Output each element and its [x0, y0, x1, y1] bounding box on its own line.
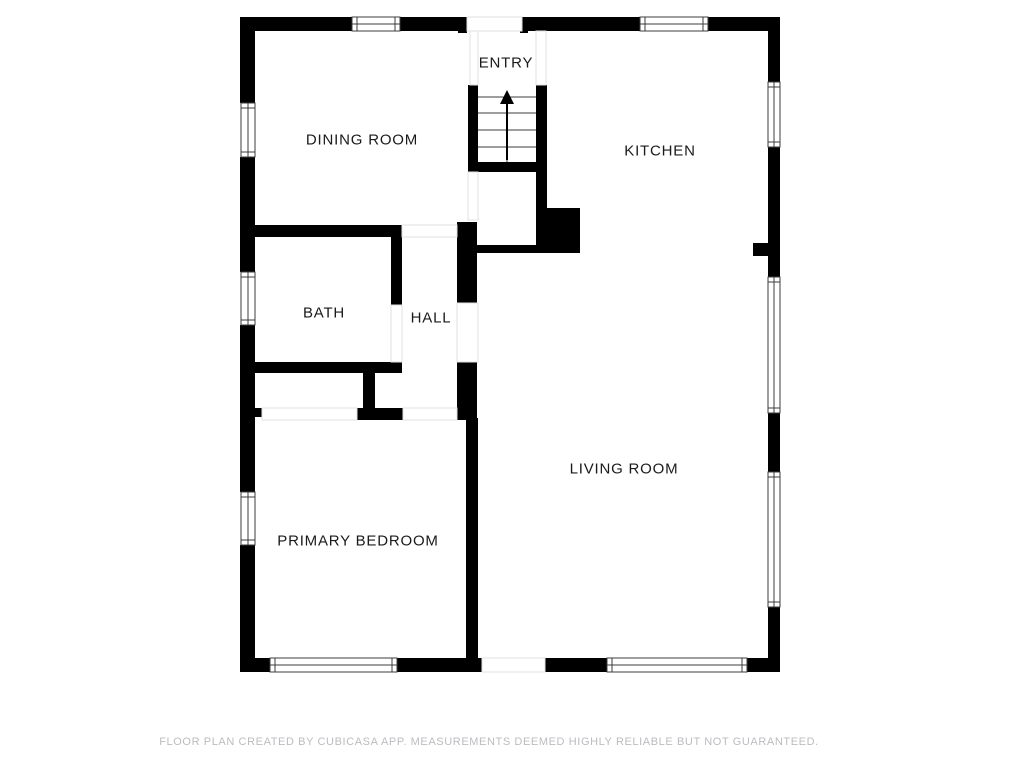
wall-bottom-4 [747, 658, 780, 672]
wall-stair-left [468, 85, 478, 172]
room-label-dining: DINING ROOM [306, 132, 418, 149]
wall-right-3 [768, 413, 780, 472]
openings [262, 17, 546, 672]
wall-closet-vertical [363, 373, 375, 410]
floor-plan-page: ENTRY DINING ROOM KITCHEN BATH HALL LIVI… [0, 0, 1024, 768]
wall-bath-right [391, 237, 402, 305]
wall-bedroom-living [466, 418, 478, 658]
wall-left-4 [240, 545, 255, 672]
wall-kitchen-living-stub [753, 243, 768, 256]
footer-disclaimer: FLOOR PLAN CREATED BY CUBICASA APP. MEAS… [159, 736, 819, 748]
window-bedroom-left [241, 492, 255, 545]
wall-bath-top [252, 225, 402, 237]
room-label-entry: ENTRY [479, 55, 534, 72]
wall-closet-bottom-horizontal [468, 245, 580, 253]
stairs [478, 90, 536, 162]
window-living-right-upper [768, 277, 780, 413]
room-label-bedroom: PRIMARY BEDROOM [277, 533, 438, 550]
entry-dining-opening [470, 31, 478, 85]
stairs-up-arrow-icon [500, 90, 514, 160]
bedroom-closet-opening [262, 408, 357, 420]
wall-right-2 [768, 147, 780, 277]
window-living-bottom [607, 658, 747, 672]
wall-bottom-3 [545, 658, 607, 672]
entry-kitchen-opening [536, 31, 546, 85]
wall-top-1 [240, 17, 352, 31]
wall-bath-bottom [252, 362, 400, 373]
wall-closet-bottom [357, 408, 403, 420]
window-kitchen-top [640, 17, 708, 31]
wall-top-2 [400, 17, 467, 31]
hall-bedroom-opening [403, 408, 457, 420]
window-bedroom-bottom [270, 658, 397, 672]
room-label-living: LIVING ROOM [570, 461, 679, 478]
wall-top-3 [522, 17, 640, 31]
hall-living-opening [457, 303, 478, 362]
wall-left-3 [240, 325, 255, 492]
wall-bottom-2 [397, 658, 482, 672]
window-kitchen-right [768, 82, 780, 147]
back-door-opening [482, 658, 545, 672]
bath-door-opening [391, 305, 402, 362]
window-dining-top [352, 17, 400, 31]
floor-plan-drawing [0, 0, 1024, 768]
wall-hall-right-lower [457, 362, 477, 420]
interior-walls [252, 85, 768, 658]
room-label-kitchen: KITCHEN [624, 143, 695, 160]
windows [241, 17, 780, 672]
wall-stair-right [536, 85, 547, 210]
exterior-walls [240, 17, 780, 672]
wall-left-1 [240, 17, 255, 103]
wall-hall-right-upper [457, 222, 477, 303]
wall-stair-bottom [468, 162, 547, 172]
room-label-hall: HALL [411, 310, 452, 327]
front-door-opening [467, 17, 522, 31]
under-stair-opening [468, 172, 478, 220]
wall-right-1 [768, 17, 780, 82]
room-label-bath: BATH [303, 305, 345, 322]
window-living-right-lower [768, 472, 780, 607]
front-door-jamb-left [458, 27, 467, 33]
wall-bottom-1 [240, 658, 270, 672]
wall-left-2 [240, 157, 255, 272]
dining-hall-opening [402, 225, 457, 237]
window-dining-left [241, 103, 255, 157]
window-bath-left [241, 272, 255, 325]
